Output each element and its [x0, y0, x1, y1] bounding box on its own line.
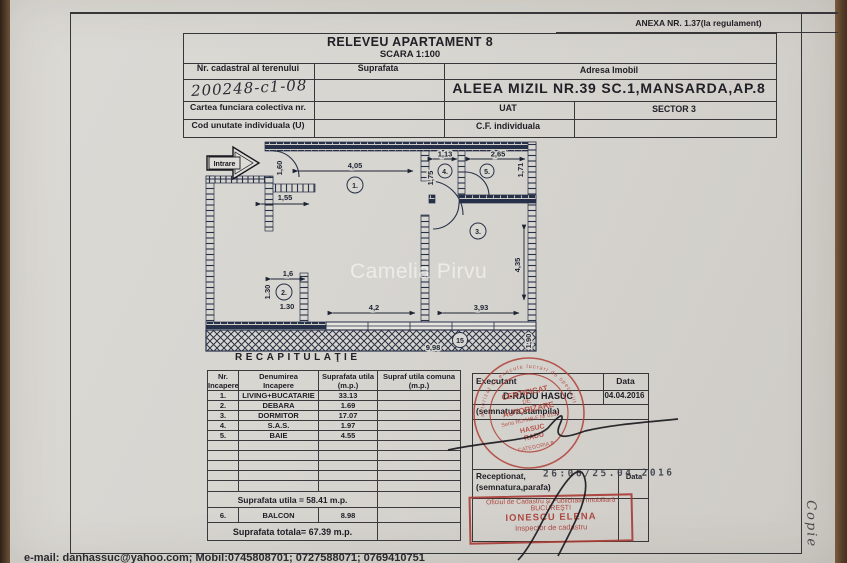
dim-debara-height-2: 1.30	[280, 302, 295, 311]
wall-hall-left	[429, 195, 435, 203]
recap-row-5: 5.BAIE4.55	[208, 431, 461, 441]
wall-debara	[300, 273, 308, 330]
watermark: Camelia Pirvu	[350, 260, 487, 284]
recap-empty-row	[208, 441, 461, 451]
copy-annotation: Copie	[803, 500, 819, 548]
dim-living-bottom: 4,2	[369, 303, 379, 312]
wall-sas-baie	[458, 151, 465, 196]
dim-entry: 1,60	[275, 161, 284, 176]
dim-balcony-width: 9,98	[426, 343, 441, 352]
entrance-arrow: Intrare	[207, 147, 259, 179]
dim-hall: 1,55	[278, 193, 293, 202]
dim-debara-height: 1.30	[263, 285, 272, 300]
suprafata-label: Suprafata	[313, 64, 443, 74]
floor-plan: Intrare 4,05 1,13 2,65 1,71 1,75 1,60 1,…	[203, 138, 548, 366]
room-dormitor-number: 3.	[475, 229, 481, 236]
entrance-label: Intrare	[214, 161, 236, 168]
desk-wood-left	[0, 0, 10, 563]
desk-wood-right	[835, 0, 847, 563]
dim-balcony-depth: 1,90	[524, 334, 533, 349]
footer-contact: e-mail: danhassuc@yahoo.com; Mobil:07458…	[24, 552, 425, 563]
document-scale: SCARA 1:100	[250, 50, 570, 60]
room-baie-number: 5.	[484, 169, 490, 176]
signature-stroke-2	[518, 471, 586, 560]
recap-row-3: 3.DORMITOR17.07	[208, 411, 461, 421]
sector-value: SECTOR 3	[573, 105, 775, 115]
room-debara-number: 2.	[281, 290, 287, 297]
scanned-document-photo: ANEXA NR. 1.37(la regulament) RELEVEU AP…	[0, 0, 847, 563]
cf-individuala-label: C.F. individuala	[443, 122, 573, 132]
cod-unitate-label: Cod unutate individuala (U)	[184, 121, 312, 131]
dim-debara-width: 1,6	[283, 269, 293, 278]
recap-empty-row	[208, 461, 461, 471]
anexa-note: ANEXA NR. 1.37(la regulament)	[566, 19, 831, 28]
wall-left	[206, 176, 214, 330]
recap-empty-row	[208, 451, 461, 461]
dim-sas-height: 1,75	[426, 171, 435, 186]
recap-row-1: 1.LIVING+BUCATARIE33.13	[208, 391, 461, 401]
door-arc-dormitor	[433, 203, 459, 229]
dim-baie-height: 1,71	[516, 163, 525, 178]
recap-balcony-row: 6.BALCON8.98	[208, 508, 461, 523]
wall-bottom-left	[206, 322, 326, 330]
room-living-number: 1.	[352, 183, 358, 190]
recap-total-row: Suprafata totala= 67.39 m.p.	[208, 523, 461, 541]
room-sas-number: 4.	[442, 169, 448, 176]
signatures	[440, 398, 685, 563]
adresa-value: ALEEA MIZIL NR.39 SC.1,MANSARDA,AP.8	[443, 81, 775, 96]
dim-sas-width: 1,13	[438, 150, 453, 159]
room-balcony-number: 15	[456, 338, 464, 345]
document-title: RELEVEU APARTAMENT 8	[250, 36, 570, 50]
balcony-hatch	[206, 330, 536, 351]
dim-dormitor-height: 4,35	[513, 258, 522, 273]
recap-row-2: 2.DEBARA1.69	[208, 401, 461, 411]
recap-header-row: Nr.Incapere DenumireaIncapere Suprafata …	[208, 371, 461, 391]
dim-living-top: 4,05	[348, 161, 363, 170]
signature-stroke-1	[448, 416, 678, 450]
recap-empty-row	[208, 481, 461, 492]
wall-dormitor-top	[459, 195, 536, 203]
recap-empty-row	[208, 471, 461, 481]
recap-row-4: 4.S.A.S.1.97	[208, 421, 461, 431]
recap-table: Nr.Incapere DenumireaIncapere Suprafata …	[207, 370, 461, 541]
uat-label: UAT	[443, 104, 573, 114]
wall-hall-stub	[273, 184, 315, 192]
dim-baie-width: 2,65	[491, 150, 506, 159]
wall-right	[528, 142, 536, 330]
executant-date-label: Data	[603, 377, 648, 386]
recap-title: RECAPITULAŢIE	[235, 352, 361, 363]
recap-subtotal-row: Suprafata utila = 58.41 m.p.	[208, 492, 461, 508]
adresa-label: Adresa Imobil	[443, 66, 775, 76]
nr-cadastral-label: Nr. cadastral al terenului	[184, 64, 312, 74]
cartea-funciara-label: Cartea funciara colectiva nr.	[184, 103, 312, 113]
dim-dormitor-bottom: 3,93	[474, 303, 489, 312]
